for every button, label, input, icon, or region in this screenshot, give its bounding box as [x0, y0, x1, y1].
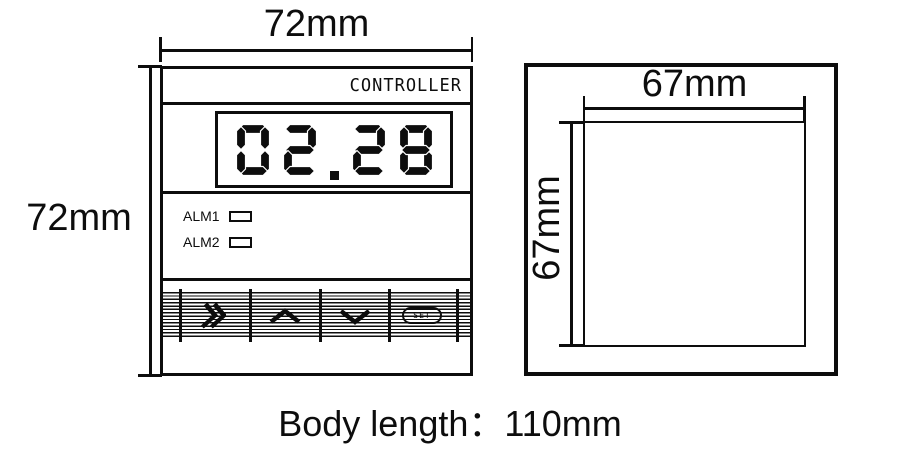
alarm-indicator-row: ALM2: [183, 235, 252, 249]
side-width-dimension-line: [583, 107, 805, 110]
dimension-tick: [559, 344, 583, 347]
alm1-led-icon: [229, 211, 252, 222]
seven-segment-display: [215, 111, 453, 188]
dimension-tick: [803, 96, 806, 121]
button-divider: [388, 289, 391, 342]
set-button-label: SET: [413, 311, 430, 320]
dimension-tick: [159, 37, 162, 62]
side-height-dimension-label: 67mm: [527, 173, 567, 283]
body-length-caption: Body length：110mm: [0, 404, 900, 444]
side-height-dimension-line: [570, 122, 573, 346]
side-view-body-square: [583, 121, 806, 347]
dimension-tick: [559, 121, 583, 124]
dimension-tick: [138, 374, 162, 377]
button-divider: [179, 289, 182, 342]
alm2-led-icon: [229, 237, 252, 248]
display-section: [163, 105, 470, 194]
button-section: SET: [163, 281, 470, 373]
chevron-down-icon: [338, 308, 372, 325]
button-divider: [456, 289, 459, 342]
front-height-dimension-label: 72mm: [20, 198, 138, 238]
front-width-dimension-label: 72mm: [160, 4, 473, 44]
panel-header: CONTROLLER: [163, 69, 470, 105]
decimal-point: [330, 171, 339, 180]
indicator-section: ALM1 ALM2: [163, 194, 470, 281]
seven-segment-digit: [236, 124, 270, 176]
brand-text: CONTROLLER: [350, 75, 462, 96]
seven-segment-digit: [399, 124, 433, 176]
chevron-up-icon: [268, 308, 302, 325]
side-width-dimension-label: 67mm: [583, 64, 806, 104]
dimension-tick: [138, 65, 162, 68]
alarm-indicator-row: ALM1: [183, 209, 252, 223]
seven-segment-digit: [283, 124, 317, 176]
set-button: SET: [402, 307, 442, 324]
controller-front-panel: CONTROLLER ALM1 ALM2: [160, 66, 473, 376]
alm2-label: ALM2: [183, 235, 220, 249]
button-divider: [319, 289, 322, 342]
front-height-dimension-line: [149, 66, 152, 376]
seven-segment-digit: [352, 124, 386, 176]
alm1-label: ALM1: [183, 209, 220, 223]
button-divider: [249, 289, 252, 342]
dimension-tick: [471, 37, 474, 62]
double-chevron-right-icon: [200, 301, 226, 330]
dimension-tick: [583, 96, 586, 121]
front-width-dimension-line: [160, 49, 473, 52]
dimension-drawing: 72mm 72mm CONTROLLER ALM1 ALM2: [0, 0, 900, 462]
